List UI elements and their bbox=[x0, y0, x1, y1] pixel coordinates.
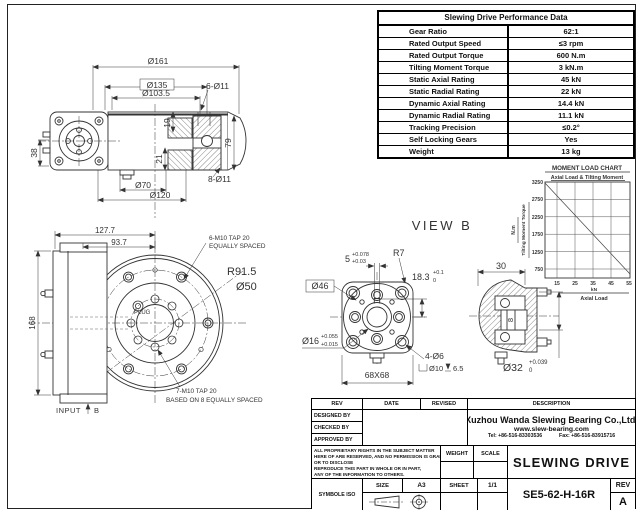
checked-by-label: CHECKED BY bbox=[312, 422, 363, 434]
row-label: Rated Output Speed bbox=[379, 38, 509, 49]
dim-r7: R7 bbox=[393, 248, 405, 258]
company-fax: Fax: +86-516-83915716 bbox=[559, 433, 615, 439]
signature-area bbox=[363, 410, 468, 446]
table-row: Tilting Moment Torque3 kN.m bbox=[379, 62, 633, 74]
dim-keyway-height: 18.3 bbox=[412, 272, 430, 282]
drawing-sheet: Slewing Drive Performance Data Gear Rati… bbox=[0, 0, 642, 514]
dim-21: 21 bbox=[154, 154, 164, 164]
table-row: Dynamic Radial Rating11.1 kN bbox=[379, 110, 633, 122]
weight-value bbox=[441, 462, 474, 479]
row-value: Yes bbox=[509, 134, 633, 145]
legal-notice: ALL PROPRIETARY RIGHTS IN THE SUBJECT MA… bbox=[312, 446, 441, 479]
svg-text:1250: 1250 bbox=[532, 250, 543, 256]
note-6-m10-line1: 6-M10 TAP 20 bbox=[209, 235, 250, 242]
row-label: Static Axial Rating bbox=[379, 74, 509, 85]
dim-30: 30 bbox=[496, 261, 506, 271]
dim-cbore-diameter: Ø10 bbox=[429, 364, 443, 373]
part-number: SE5-62-H-16R bbox=[508, 479, 611, 510]
table-row: Weight13 kg bbox=[379, 146, 633, 157]
dim-79: 79 bbox=[223, 138, 233, 148]
company-name: Xuzhou Wanda Slewing Bearing Co.,Ltd. bbox=[468, 415, 635, 425]
chart-subtitle: Axial Load & Tilting Moment bbox=[551, 175, 624, 181]
scale-value bbox=[474, 462, 508, 479]
svg-text:1750: 1750 bbox=[532, 232, 543, 238]
designed-by-label: DESIGNED BY bbox=[312, 410, 363, 422]
performance-table-title: Slewing Drive Performance Data bbox=[379, 12, 633, 26]
svg-text:55: 55 bbox=[626, 281, 632, 287]
performance-table: Slewing Drive Performance Data Gear Rati… bbox=[377, 10, 635, 159]
dim-d120: Ø120 bbox=[150, 190, 171, 200]
table-row: Static Radial Rating22 kN bbox=[379, 86, 633, 98]
dim-d70: Ø70 bbox=[135, 180, 151, 190]
row-label: Static Radial Rating bbox=[379, 86, 509, 97]
row-value: 600 N.m bbox=[509, 50, 633, 61]
date-column-header: DATE bbox=[363, 399, 421, 410]
company-block: Xuzhou Wanda Slewing Bearing Co.,Ltd. ww… bbox=[468, 410, 635, 446]
dim-d32-tol-hi: +0.039 bbox=[529, 360, 548, 366]
label-input: INPUT bbox=[56, 406, 81, 415]
dim-keyway-height-tol-hi: +0.1 bbox=[433, 270, 444, 276]
row-label: Dynamic Radial Rating bbox=[379, 110, 509, 121]
dim-168: 168 bbox=[28, 316, 37, 330]
row-label: Tilting Moment Torque bbox=[379, 62, 509, 73]
row-value: ≤3 rpm bbox=[509, 38, 633, 49]
revised-column-header: REVISED bbox=[421, 399, 468, 410]
dim-d32: Ø32 bbox=[503, 362, 523, 374]
title-block: REV DATE REVISED DESCRIPTION DESIGNED BY… bbox=[311, 398, 636, 509]
dim-keyway-width-tol-lo: +0.03 bbox=[352, 259, 366, 265]
table-row: Tracking Precision≤0.2° bbox=[379, 122, 633, 134]
front-view-drawing: 127.7 93.7 168 6-M10 TAP 20 EQUALLY SPAC… bbox=[8, 223, 320, 415]
dim-keyway-width-tol-hi: +0.078 bbox=[352, 252, 369, 258]
view-b-title: VIEW B bbox=[412, 218, 473, 233]
company-contact: Tel: +86-516-83303536 Fax: +86-516-83915… bbox=[488, 434, 615, 440]
sheet-value: 1/1 bbox=[478, 479, 508, 493]
company-tel: Tel: +86-516-83303536 bbox=[488, 433, 542, 439]
dim-d16-tol-lo: +0.015 bbox=[321, 342, 338, 348]
table-row: Rated Output Torque600 N.m bbox=[379, 50, 633, 62]
note-6-m10-line2: EQUALLY SPACED bbox=[209, 243, 266, 250]
svg-text:3250: 3250 bbox=[532, 180, 543, 186]
label-plug: PLUG bbox=[134, 310, 151, 316]
dim-r91-5: R91.5 bbox=[227, 266, 256, 278]
note-7-m10-line1: 7-M10 TAP 20 bbox=[176, 388, 217, 395]
row-label: Weight bbox=[379, 146, 509, 157]
table-row: Rated Output Speed≤3 rpm bbox=[379, 38, 633, 50]
drawing-title: SLEWING DRIVE bbox=[508, 446, 635, 479]
dim-38: 38 bbox=[29, 148, 39, 158]
chart-title: MOMENT LOAD CHART bbox=[552, 165, 622, 172]
dim-d32-tol-lo: 0 bbox=[529, 368, 533, 374]
weight-label: WEIGHT bbox=[441, 446, 474, 462]
projection-symbol-cell bbox=[363, 493, 441, 510]
table-row: Dynamic Axial Rating14.4 kN bbox=[379, 98, 633, 110]
row-value: 3 kN.m bbox=[509, 62, 633, 73]
label-input-b: B bbox=[94, 406, 99, 415]
symbole-iso-label: SYMBOLE ISO bbox=[312, 479, 363, 510]
dim-8-d11: 8-Ø11 bbox=[208, 174, 231, 184]
section-detail-drawing: 30 8 Ø32 +0.039 0 bbox=[455, 258, 595, 393]
dim-keyway-height-tol-lo: 0 bbox=[433, 278, 436, 284]
table-row: Self Locking GearsYes bbox=[379, 134, 633, 146]
row-label: Self Locking Gears bbox=[379, 134, 509, 145]
dim-d103-5: Ø103.5 bbox=[142, 88, 170, 98]
row-label: Tracking Precision bbox=[379, 122, 509, 133]
approved-by-label: APPROVED BY bbox=[312, 434, 363, 446]
chart-y-unit: N.m bbox=[511, 225, 517, 235]
dim-d16-tol-hi: +0.055 bbox=[321, 334, 338, 340]
row-value: 22 kN bbox=[509, 86, 633, 97]
dim-d50: Ø50 bbox=[236, 281, 257, 293]
rev-column-header: REV bbox=[312, 399, 363, 410]
size-label: SIZE bbox=[363, 479, 403, 493]
legal-line: ANY OF THE INFORMATION TO OTHERS. bbox=[314, 472, 439, 478]
svg-text:2750: 2750 bbox=[532, 197, 543, 203]
sheet-label: SHEET bbox=[441, 479, 478, 493]
row-value: ≤0.2° bbox=[509, 122, 633, 133]
third-angle-projection-icon bbox=[367, 494, 437, 510]
row-value: 14.4 kN bbox=[509, 98, 633, 109]
rev-label: REV bbox=[611, 479, 635, 493]
svg-text:2250: 2250 bbox=[532, 215, 543, 221]
empty-cell bbox=[478, 493, 508, 510]
dim-4-d6: 4-Ø6 bbox=[425, 351, 444, 361]
dim-d46: Ø46 bbox=[311, 281, 328, 291]
dim-68x68: 68X68 bbox=[365, 370, 390, 380]
table-row: Static Axial Rating45 kN bbox=[379, 74, 633, 86]
row-value: 62:1 bbox=[509, 26, 633, 37]
row-label: Gear Ratio bbox=[379, 26, 509, 37]
dim-93-7: 93.7 bbox=[111, 238, 127, 247]
side-view-drawing: Ø161 Ø135 Ø103.5 6-Ø11 19 21 38 Ø70 Ø120… bbox=[8, 48, 260, 226]
dim-d16: Ø16 bbox=[302, 336, 319, 346]
empty-cell bbox=[441, 493, 478, 510]
dim-8: 8 bbox=[506, 318, 515, 322]
row-label: Dynamic Axial Rating bbox=[379, 98, 509, 109]
table-row: Gear Ratio62:1 bbox=[379, 26, 633, 38]
rev-value: A bbox=[611, 493, 635, 510]
dim-19: 19 bbox=[162, 118, 172, 128]
dim-127-7: 127.7 bbox=[95, 226, 116, 235]
dim-d161: Ø161 bbox=[148, 56, 169, 66]
row-value: 13 kg bbox=[509, 146, 633, 157]
dim-6-d11: 6-Ø11 bbox=[206, 81, 229, 91]
svg-text:45: 45 bbox=[608, 281, 614, 287]
scale-label: SCALE bbox=[474, 446, 508, 462]
dim-keyway-width: 5 bbox=[345, 254, 350, 264]
row-value: 45 kN bbox=[509, 74, 633, 85]
chart-y-label: Tilting Moment Torque bbox=[521, 204, 527, 256]
row-value: 11.1 kN bbox=[509, 110, 633, 121]
description-column-header: DESCRIPTION bbox=[468, 399, 635, 410]
size-value: A3 bbox=[403, 479, 441, 493]
row-label: Rated Output Torque bbox=[379, 50, 509, 61]
note-7-m10-line2: BASED ON 8 EQUALLY SPACED bbox=[166, 397, 263, 404]
